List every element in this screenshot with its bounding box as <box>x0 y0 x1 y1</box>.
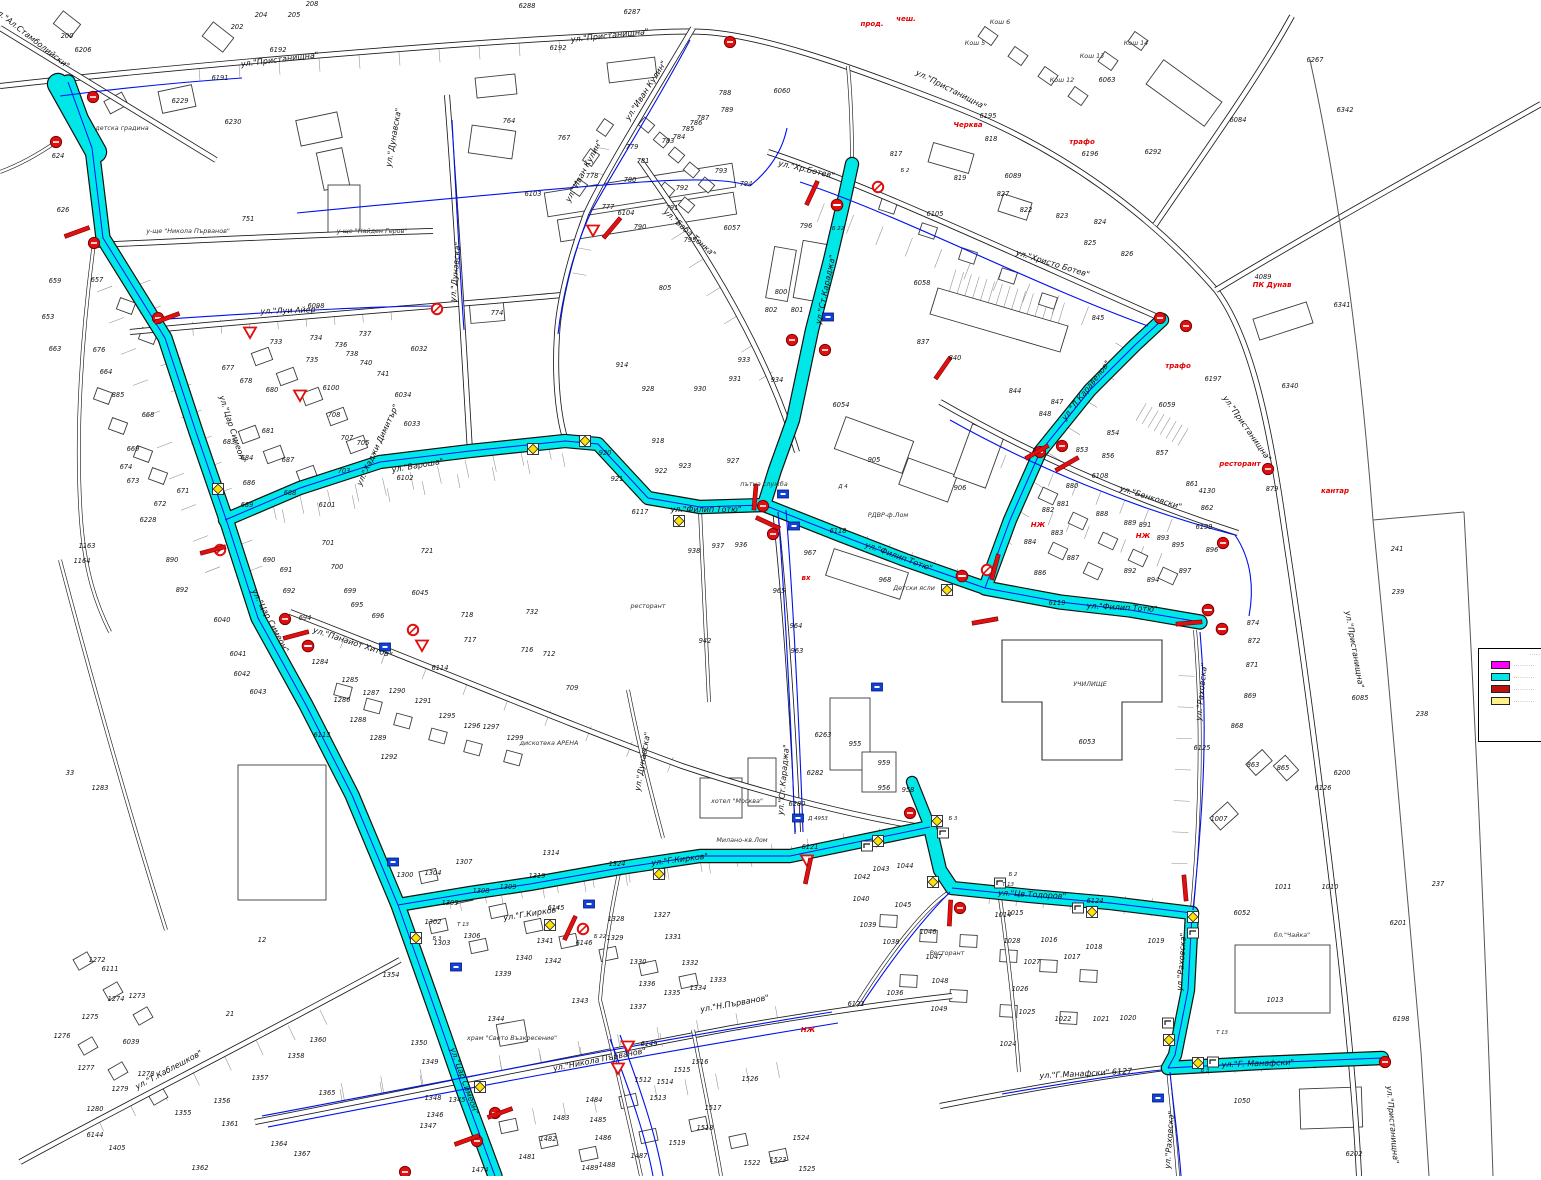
parcel-line <box>935 249 942 268</box>
info-sign-icon <box>451 963 462 971</box>
info-sign-icon <box>872 683 883 691</box>
parcel-number: 6126 <box>1315 784 1332 792</box>
road-surface <box>0 142 56 172</box>
parcel-number: 1486 <box>595 1134 612 1142</box>
parcel-number: 885 <box>112 391 125 399</box>
parcel-number: 1290 <box>389 687 406 695</box>
signpost-bar <box>64 226 90 239</box>
parcel-number: 965 <box>773 587 786 595</box>
parcel-line <box>300 496 304 514</box>
parcel-number: 6145 <box>548 904 565 912</box>
stop-sign-icon <box>904 807 915 818</box>
parcel-number: 958 <box>902 786 915 794</box>
parcel-number: 1020 <box>1120 1014 1137 1022</box>
parcel-number: 721 <box>421 547 434 555</box>
parcel-number: 1295 <box>439 712 456 720</box>
street-name-label: ул."Панайот Хитов" <box>311 625 394 660</box>
no-entry-sign-icon <box>956 570 968 582</box>
parcel-number: 695 <box>351 601 364 609</box>
parcel-number: 1358 <box>288 1052 305 1060</box>
map-legend: ······ ·········· ·········· ·········· … <box>1478 648 1541 742</box>
parcel-number: 871 <box>1246 661 1259 669</box>
parcel-line <box>1096 492 1101 505</box>
parcel-number: 879 <box>1266 485 1279 493</box>
parcel-number: 1025 <box>1019 1008 1036 1016</box>
parcel-number: 668 <box>142 411 155 419</box>
parcel-number: 1483 <box>553 1114 570 1122</box>
parcel-line <box>224 1056 231 1070</box>
parcel-number: 955 <box>849 740 862 748</box>
stop-sign-icon <box>954 902 965 913</box>
parcel-number: 1280 <box>87 1105 104 1113</box>
parcel-line <box>689 259 703 267</box>
parcel-number: 819 <box>954 174 967 182</box>
parcel-line <box>1178 428 1188 445</box>
stop-sign-icon <box>1180 320 1191 331</box>
stop-sign-icon <box>50 136 61 147</box>
parcel-number: 1350 <box>411 1039 428 1047</box>
parcel-number: 1337 <box>630 1003 648 1011</box>
parcel-number: 6191 <box>212 74 229 82</box>
parcel-number: 6042 <box>234 670 251 678</box>
red-annotation: кантар <box>1321 487 1349 495</box>
street-name-label: ул."Пристанищна" <box>1385 1084 1401 1164</box>
parcel-number: 6098 <box>308 302 325 310</box>
sign-code-label: Б 2 <box>901 168 910 174</box>
sign-plate-icon <box>938 828 949 838</box>
poi-label: пътна служба <box>740 480 788 488</box>
parcel-number: 922 <box>655 467 668 475</box>
parcel-number: 1007 <box>1211 815 1229 823</box>
parcel-number: 6032 <box>411 345 428 353</box>
parcel-number: 1523 <box>770 1156 787 1164</box>
parcel-line <box>1001 455 1006 468</box>
no-parking-sign-icon <box>578 924 588 934</box>
parcel-line <box>383 478 387 496</box>
parcel-line <box>97 286 112 292</box>
parcel-number: 687 <box>282 456 295 464</box>
parcel-number: 1488 <box>599 1161 616 1169</box>
red-annotation: трафо <box>1165 362 1191 370</box>
building <box>464 740 483 756</box>
parcel-number: 1347 <box>420 1122 438 1130</box>
building <box>900 975 918 988</box>
info-sign-icon <box>584 900 595 908</box>
parcel-number: 793 <box>715 167 728 175</box>
parcel-number: 1342 <box>545 957 562 965</box>
parcel-number: 827 <box>997 190 1010 198</box>
parcel-line <box>1023 284 1030 303</box>
parcel-line <box>1084 526 1089 539</box>
parcel-number: 6122 <box>848 1000 865 1008</box>
parcel-number: 1314 <box>543 849 560 857</box>
parcel-number: 6144 <box>87 1131 104 1139</box>
legend-label: ·········· <box>1514 687 1535 692</box>
red-annotation: НЖ <box>1031 521 1046 529</box>
parcel-number: 1306 <box>464 932 481 940</box>
parcel-number: 823 <box>1056 212 1069 220</box>
parcel-number: 1360 <box>310 1036 327 1044</box>
red-annotation: ресторант <box>1218 460 1261 468</box>
building <box>93 388 112 405</box>
street-name-label: ул."Пристанищна" <box>1343 609 1366 688</box>
building <box>133 1007 153 1025</box>
parcel-number: 1339 <box>495 970 512 978</box>
parcel-number: 1336 <box>639 980 656 988</box>
poi-label: Кош 12 <box>1050 76 1074 84</box>
poi-label: ресторант <box>629 602 665 610</box>
stop-sign-icon <box>819 344 830 355</box>
stop-sign-icon <box>1154 312 1165 323</box>
road-surface <box>700 510 709 702</box>
parcel-number: 1289 <box>370 734 387 742</box>
parcel-number: 6197 <box>1205 375 1223 383</box>
sign-plate-icon <box>1073 903 1084 913</box>
parcel-number: 1042 <box>854 873 871 881</box>
parcel-line <box>527 460 530 474</box>
parcel-number: 1049 <box>931 1005 948 1013</box>
priority-road-sign-icon <box>475 1082 486 1093</box>
poi-label: Кош 6 <box>990 18 1010 26</box>
parcel-number: 1485 <box>590 1116 607 1124</box>
highlighted-street <box>764 164 852 505</box>
parcel-number: 6111 <box>102 965 119 973</box>
parcel-line <box>1174 801 1190 802</box>
road-surface <box>600 1000 641 1176</box>
building <box>1008 46 1028 65</box>
parcel-number: 741 <box>377 370 390 378</box>
parcel-number: 802 <box>765 306 778 314</box>
parcel-line <box>457 474 460 488</box>
parcel-number: 886 <box>1034 569 1047 577</box>
parcel-line <box>1178 707 1194 708</box>
parcel-number: 6053 <box>1079 738 1096 746</box>
parcel-number: 1302 <box>425 918 442 926</box>
parcel-number: 718 <box>461 611 474 619</box>
parcel-line <box>1081 307 1088 326</box>
poi-label: Кош 13 <box>1080 52 1104 60</box>
parcel-line <box>288 1025 295 1039</box>
parcel-number: 1010 <box>1322 883 1339 891</box>
parcel-number: 205 <box>288 11 301 19</box>
parcel-number: 701 <box>322 539 335 547</box>
parcel-number: 6340 <box>1282 382 1299 390</box>
parcel-number: 204 <box>255 11 268 19</box>
parcel-line <box>256 1041 263 1055</box>
parcel-number: 735 <box>306 356 319 364</box>
parcel-line <box>724 316 738 324</box>
building <box>834 417 913 474</box>
no-entry-sign-icon <box>831 199 843 211</box>
parcel-number: 790 <box>634 223 647 231</box>
parcel-number: 1489 <box>582 1164 599 1172</box>
parcel-number: 1050 <box>1234 1097 1251 1105</box>
parcel-number: 1011 <box>1275 883 1292 891</box>
parcel-number: 6041 <box>230 650 247 658</box>
parcel-number: 6104 <box>618 209 635 217</box>
parcel-number: 1028 <box>1004 937 1021 945</box>
parcel-number: 923 <box>679 462 692 470</box>
parcel-number: 669 <box>127 445 140 453</box>
parcel-number: 1514 <box>657 1078 674 1086</box>
parcel-number: 1021 <box>1093 1015 1110 1023</box>
parcel-number: 1017 <box>1064 953 1082 961</box>
parcel-number: 805 <box>659 284 672 292</box>
parcel-number: 848 <box>1039 410 1052 418</box>
parcel-number: 837 <box>917 338 930 346</box>
red-annotation: трафо <box>1069 138 1095 146</box>
parcel-number: 6085 <box>1352 694 1369 702</box>
parcel-number: 1349 <box>422 1058 439 1066</box>
parcel-number: 691 <box>280 566 293 574</box>
parcel-number: 894 <box>1147 576 1160 584</box>
parcel-number: 208 <box>306 0 319 8</box>
priority-road-sign-icon <box>873 836 884 847</box>
stop-sign-icon <box>757 500 768 511</box>
parcel-number: 890 <box>166 556 179 564</box>
parcel-number: 921 <box>611 475 624 483</box>
building <box>899 458 957 502</box>
parcel-number: 891 <box>1139 521 1152 529</box>
parcel-number: 1512 <box>635 1076 652 1084</box>
parcel-number: 918 <box>652 437 665 445</box>
parcel-number: 1365 <box>319 1089 336 1097</box>
parcel-number: 678 <box>240 377 253 385</box>
parcel-number: 677 <box>222 364 235 372</box>
parcel-number: 1519 <box>669 1139 686 1147</box>
sign-code-label: Б 22 <box>594 934 607 940</box>
parcel-number: 1284 <box>312 658 329 666</box>
parcel-number: 653 <box>42 313 55 321</box>
parcel-number: 854 <box>1107 429 1120 437</box>
building <box>1038 487 1058 505</box>
parcel-number: 1522 <box>744 1159 761 1167</box>
parcel-number: 1276 <box>54 1032 71 1040</box>
parcel-number: 1274 <box>108 995 125 1003</box>
parcel-number: 6263 <box>815 731 832 739</box>
parcel-number: 1329 <box>607 934 624 942</box>
poi-label: Милано-кв.Лом <box>716 836 767 844</box>
parcel-number: 707 <box>341 434 354 442</box>
parcel-line <box>1136 403 1146 420</box>
parcel-number: 6198 <box>1393 1015 1410 1023</box>
building <box>1253 302 1313 340</box>
parcel-line <box>777 1062 780 1078</box>
parcel-number: 933 <box>738 356 751 364</box>
parcel-number: 784 <box>673 133 686 141</box>
parcel-number: 680 <box>266 386 279 394</box>
legend-item: ·········· <box>1491 661 1541 669</box>
parcel-number: 6063 <box>1099 76 1116 84</box>
parcel-number: 6192 <box>270 46 287 54</box>
parcel-number: 844 <box>1009 387 1022 395</box>
parcel-number: 893 <box>1157 534 1170 542</box>
signpost-bar <box>283 630 309 641</box>
parcel-number: 6043 <box>250 688 267 696</box>
parcel-number: 1304 <box>425 869 442 877</box>
stop-sign-icon <box>724 36 735 47</box>
parcel-line <box>193 536 208 542</box>
poi-label: Кош 14 <box>1124 39 1148 47</box>
parcel-number: 884 <box>1024 538 1037 546</box>
parcel-number: 774 <box>491 309 504 317</box>
parcel-number: 6100 <box>323 384 340 392</box>
sign-code-label: Т 13 <box>1216 1030 1228 1036</box>
parcel-number: 964 <box>790 622 803 630</box>
parcel-number: 1335 <box>664 989 681 997</box>
parcel-number: 6196 <box>1082 150 1099 158</box>
parcel-number: 791 <box>666 204 679 212</box>
parcel-number: 1362 <box>192 1164 209 1172</box>
parcel-number: 6060 <box>774 87 791 95</box>
priority-road-sign-icon <box>1188 912 1199 923</box>
parcel-number: 6229 <box>172 97 189 105</box>
parcel-line <box>422 481 425 495</box>
sign-plate-icon <box>1163 1018 1174 1028</box>
parcel-number: 1297 <box>483 723 501 731</box>
parcel-number: 1038 <box>883 938 900 946</box>
road-surface <box>79 243 110 632</box>
parcel-number: 21 <box>226 1010 234 1018</box>
priority-road-sign-icon <box>928 877 939 888</box>
stop-sign-icon <box>786 334 797 345</box>
parcel-number: 1285 <box>342 676 359 684</box>
building <box>1158 567 1178 585</box>
parcel-number: 1357 <box>252 1074 270 1082</box>
poi-label: у-ще "Никола Първанов" <box>145 227 230 235</box>
parcel-number: 1019 <box>1148 937 1165 945</box>
parcel-number: 200 <box>61 32 74 40</box>
stop-sign-icon <box>399 1166 410 1176</box>
sign-code-label: Б 2 <box>1009 872 1018 878</box>
parcel-number: 6059 <box>1159 401 1176 409</box>
parcel-number: 1309 <box>500 883 517 891</box>
legend-label: ·········· <box>1514 663 1535 668</box>
parcel-number: 1345 <box>449 1096 466 1104</box>
sign-code-label: Б 3 <box>1201 1068 1210 1074</box>
stop-sign-icon <box>767 528 778 539</box>
building <box>148 468 167 485</box>
parcel-number: 1024 <box>1000 1040 1017 1048</box>
parcel-number: 906 <box>954 484 967 492</box>
parcel-number: 6201 <box>1390 919 1407 927</box>
building <box>469 938 488 953</box>
priority-road-sign-icon <box>1193 1058 1204 1069</box>
parcel-number: 736 <box>335 341 348 349</box>
utility-line <box>1235 535 1251 616</box>
stop-sign-icon <box>279 613 290 624</box>
building <box>468 125 515 159</box>
parcel-number: 6202 <box>1346 1150 1363 1158</box>
highlight-casing <box>985 320 1162 588</box>
sign-code-label: Т 13 <box>457 922 469 928</box>
parcel-line <box>577 248 591 251</box>
parcel-number: 6288 <box>519 2 536 10</box>
parcel-number: 817 <box>890 150 903 158</box>
parcel-number: 6118 <box>830 527 847 535</box>
priority-road-sign-icon <box>1087 907 1098 918</box>
parcel-number: 1330 <box>630 958 647 966</box>
building <box>504 750 523 766</box>
parcel-number: 689 <box>241 501 254 509</box>
parcel-number: 840 <box>949 354 962 362</box>
priority-road-sign-icon <box>674 516 685 527</box>
parcel-number: 888 <box>1096 510 1109 518</box>
parcel-line <box>1142 407 1152 424</box>
parcel-number: 880 <box>1066 482 1079 490</box>
stop-sign-icon <box>1262 463 1273 474</box>
water-main-line <box>985 320 1162 588</box>
parcel-number: 1286 <box>334 696 351 704</box>
parcel-number: 6034 <box>395 391 412 399</box>
no-parking-sign-icon <box>432 304 442 314</box>
parcel-line <box>109 317 124 323</box>
no-parking-sign-icon <box>873 182 883 192</box>
parcel-number: 33 <box>66 769 74 777</box>
parcel-number: 699 <box>344 587 357 595</box>
street-name-label: ул."Дунавска" <box>384 107 403 168</box>
parcel-number: 1015 <box>1007 909 1024 917</box>
parcel-number: 737 <box>359 330 372 338</box>
parcel-number: 6103 <box>525 190 542 198</box>
parcel-line <box>1171 863 1187 864</box>
building <box>364 698 383 714</box>
parcel-line <box>282 509 285 523</box>
building <box>1080 970 1098 983</box>
parcel-number: 959 <box>878 759 891 767</box>
parcel-number: 764 <box>503 117 516 125</box>
parcel-number: 778 <box>586 172 599 180</box>
signpost-bar <box>947 900 952 926</box>
parcel-line <box>1121 539 1126 552</box>
parcel-number: 887 <box>1067 554 1080 562</box>
parcel-line <box>438 466 442 484</box>
parcel-number: 1474 <box>472 1166 489 1174</box>
parcel-number: 732 <box>526 608 539 616</box>
parcel-number: 238 <box>1416 710 1429 718</box>
parcel-number: 927 <box>727 457 740 465</box>
parcel-number: 963 <box>791 647 804 655</box>
poi-label: храм "Свето Възкресение" <box>466 1034 557 1042</box>
parcel-number: 801 <box>791 306 804 314</box>
parcel-number: 6105 <box>927 210 944 218</box>
parcel-number: 6089 <box>1005 172 1022 180</box>
parcel-line <box>157 442 172 448</box>
parcel-number: 1164 <box>74 557 91 565</box>
parcel-number: 895 <box>1172 541 1185 549</box>
map-viewport: { "map_sheet":{ "street_labels":[ ["ул.\… <box>0 0 1541 1176</box>
parcel-number: 6119 <box>1049 599 1066 607</box>
priority-road-sign-icon <box>528 444 539 455</box>
parcel-number: 4089 <box>1255 273 1272 281</box>
parcel-number: 847 <box>1051 398 1064 406</box>
parcel-number: 1026 <box>1012 985 1029 993</box>
highlighted-street <box>985 320 1162 588</box>
parcel-number: 709 <box>566 684 579 692</box>
parcel-number: 1482 <box>540 1135 557 1143</box>
parcel-number: 942 <box>699 637 712 645</box>
info-sign-icon <box>789 522 800 530</box>
priority-road-sign-icon <box>411 933 422 944</box>
info-sign-icon <box>388 858 399 866</box>
parcel-number: 1039 <box>860 921 877 929</box>
parcel-number: 1525 <box>799 1165 816 1173</box>
parcel-number: 6342 <box>1337 106 1354 114</box>
parcel-number: 1327 <box>654 911 672 919</box>
priority-road-sign-icon <box>932 816 943 827</box>
parcel-number: 6200 <box>1334 769 1351 777</box>
parcel-number: 683 <box>223 438 236 446</box>
